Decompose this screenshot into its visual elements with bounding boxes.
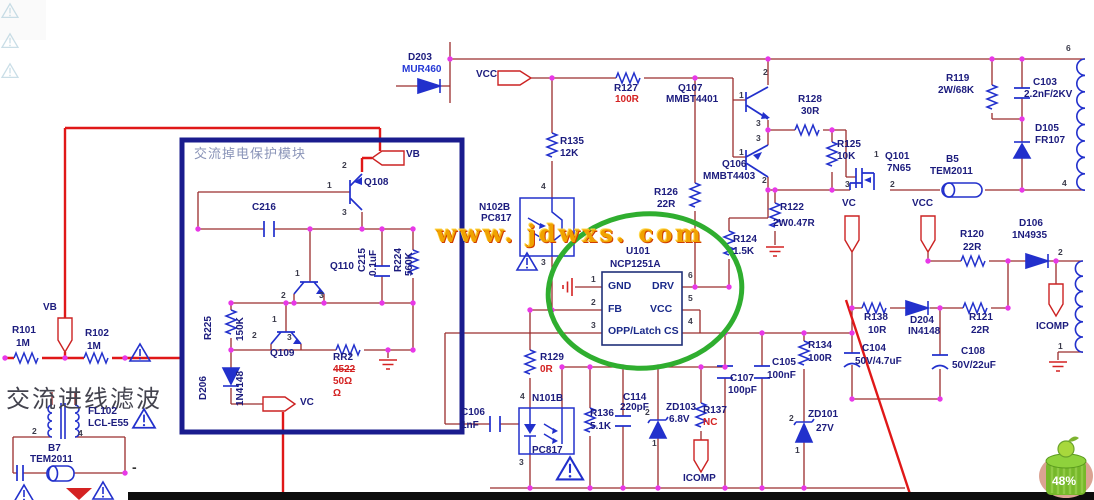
- resistor-r102: [84, 353, 108, 363]
- label-u101: U101: [626, 247, 650, 257]
- n101b-pin4: 4: [520, 392, 525, 401]
- label-d203: D203: [408, 53, 432, 63]
- label-fl102-value: LCL-E55: [88, 419, 129, 429]
- q106-pin3: 3: [756, 134, 761, 143]
- label-r122-value: 2W0.47R: [773, 219, 815, 229]
- label-q106: Q106: [722, 160, 746, 170]
- xfmr-pin6: 6: [1066, 44, 1071, 53]
- zener-zd103: [650, 422, 666, 438]
- resistor-r120: [961, 256, 985, 266]
- label-zd103: ZD103: [666, 403, 696, 413]
- label-c107: C107: [730, 374, 754, 384]
- label-c103: C103: [1033, 78, 1057, 88]
- label-d206: D206: [199, 376, 209, 400]
- flag-vb-left: [58, 318, 72, 352]
- n102b-pin4: 4: [541, 182, 546, 191]
- capacitors: [17, 88, 1030, 481]
- label-r138-value: 10R: [868, 326, 886, 336]
- label-r128-value: 30R: [801, 107, 819, 117]
- label-icomp-bottom: ICOMP: [683, 474, 716, 484]
- label-r225-value: 150K: [236, 317, 246, 341]
- zd103-pin2: 2: [645, 408, 650, 417]
- power-wires: [5, 128, 912, 500]
- label-d206-value: 1N4148: [236, 371, 246, 406]
- diode-d105: [1014, 144, 1030, 158]
- label-r129-value: 0R: [540, 365, 553, 375]
- label-c107-value: 100pF: [728, 386, 757, 396]
- label-n101b-value: PC817: [532, 446, 563, 456]
- label-r136: R136: [590, 409, 614, 419]
- label-q107-value: MMBT4401: [666, 95, 718, 105]
- label-r119-value: 2W/68K: [938, 86, 974, 96]
- bottom-bar: [128, 492, 1094, 500]
- label-icomp-right: ICOMP: [1036, 322, 1069, 332]
- label-c215-value: 0.1uF: [369, 250, 379, 276]
- q101-pin2: 2: [890, 180, 895, 189]
- q106-pin2: 2: [762, 176, 767, 185]
- label-b5-value: TEM2011: [930, 167, 973, 177]
- label-c106-value: 1nF: [461, 421, 479, 431]
- resistor-r127: [616, 73, 640, 83]
- label-q101: Q101: [885, 152, 909, 162]
- label-q110: Q110: [330, 262, 354, 272]
- label-r134: R134: [808, 341, 832, 351]
- q109-pin1: 1: [272, 315, 277, 324]
- label-r125: R125: [837, 140, 861, 150]
- label-zd101: ZD101: [808, 410, 838, 420]
- flag-vcc-mid: [921, 216, 935, 252]
- label-vb-left: VB: [43, 303, 57, 313]
- label-c104-value: 50V/4.7uF: [855, 357, 902, 367]
- label-fl102: FL102: [88, 407, 117, 417]
- q109-pin3: 3: [287, 333, 292, 342]
- label-vc-module: VC: [300, 398, 314, 408]
- label-r121-value: 22R: [971, 326, 989, 336]
- flag-vcc-top: [498, 71, 531, 85]
- zd101-pin2: 2: [789, 414, 794, 423]
- q110-pin1: 1: [295, 269, 300, 278]
- label-r138: R138: [864, 313, 888, 323]
- label-r224: R224: [394, 248, 404, 272]
- signal-wires: [13, 42, 1085, 488]
- label-q101-value: 7N65: [887, 164, 911, 174]
- flag-icomp-bottom: [694, 440, 708, 472]
- label-r120: R120: [960, 230, 984, 240]
- label-r137: R137: [703, 406, 727, 416]
- flag-icomp-right: [1049, 284, 1063, 316]
- label-q108: Q108: [364, 178, 388, 188]
- u101-pin5-num: 5: [688, 294, 693, 303]
- label-rr2-unit: Ω: [333, 389, 341, 399]
- u101-pin-fb: FB: [608, 304, 622, 315]
- q109-pin2: 2: [252, 331, 257, 340]
- label-r120-value: 22R: [963, 243, 981, 253]
- flag-vc-mid: [845, 216, 859, 252]
- battery-widget[interactable]: 48%: [1039, 437, 1093, 498]
- label-r101-value: 1M: [16, 339, 30, 349]
- resistor-r129: [525, 350, 535, 374]
- label-r126: R126: [654, 188, 678, 198]
- zener-zd101: [796, 424, 812, 442]
- label-d106: D106: [1019, 219, 1043, 229]
- label-n102b-value: PC817: [481, 214, 512, 224]
- q108-pin1: 1: [327, 181, 332, 190]
- label-c108-value: 50V/22uF: [952, 361, 996, 371]
- resistor-r128: [795, 125, 819, 135]
- label-rr2-old-value: 4522: [333, 365, 355, 375]
- ac-filter-caption: 交流进线滤波: [6, 379, 162, 414]
- label-c106: C106: [461, 408, 485, 418]
- label-c216: C216: [252, 203, 276, 213]
- u101-pin-vcc: VCC: [650, 304, 672, 315]
- label-d106-value: 1N4935: [1012, 231, 1047, 241]
- label-r128: R128: [798, 95, 822, 105]
- resistor-r101: [14, 353, 38, 363]
- label-zd101-value: 27V: [816, 424, 834, 434]
- q106-pin1: 1: [739, 148, 744, 157]
- label-b7-value: TEM2011: [30, 455, 73, 465]
- battery-percent: 48%: [1052, 474, 1076, 488]
- q107-pin2: 2: [763, 68, 768, 77]
- label-rr2-value: 50Ω: [333, 377, 352, 387]
- q107-pin1: 1: [739, 91, 744, 100]
- bead-b7: [47, 466, 74, 481]
- zd101-pin1: 1: [795, 446, 800, 455]
- red-triangle-bottom: [66, 488, 92, 500]
- label-r127-value: 100R: [615, 95, 639, 105]
- label-r124: R124: [733, 235, 757, 245]
- q108-pin2: 2: [342, 161, 347, 170]
- label-r125-value: 10K: [837, 152, 855, 162]
- label-r134-value: 100R: [808, 354, 832, 364]
- label-n102b: N102B: [479, 203, 510, 213]
- diode-d203: [418, 79, 440, 93]
- protection-module-box: [182, 140, 462, 432]
- net-flags: [58, 71, 1063, 472]
- label-r122: R122: [780, 203, 804, 213]
- resistor-r125: [827, 142, 837, 166]
- aux-pin1: 1: [1058, 342, 1063, 351]
- label-rr2: RR2: [333, 353, 353, 363]
- diode-d106: [1026, 254, 1048, 268]
- xfmr-pin4: 4: [1062, 179, 1067, 188]
- ground-u101-gnd: [563, 278, 572, 296]
- label-vcc-top: VCC: [476, 70, 497, 80]
- minus-sign: -: [132, 459, 137, 475]
- label-b5: B5: [946, 155, 959, 165]
- label-r102: R102: [85, 329, 109, 339]
- q101-pin3: 3: [845, 180, 850, 189]
- label-r135-value: 12K: [560, 149, 578, 159]
- label-r124-value: 1.5K: [733, 247, 754, 257]
- label-r224-value: 560K: [405, 252, 415, 276]
- label-c104: C104: [862, 344, 886, 354]
- label-zd103-value: 6.8V: [669, 415, 690, 425]
- schematic-page: 48% 交流掉电保护模块 www. jdwxs. com 交流进线滤波 D203…: [0, 0, 1094, 500]
- label-d203-value: MUR460: [402, 65, 441, 75]
- diode-d204: [906, 301, 928, 315]
- warning-triangles: [14, 253, 583, 500]
- label-r101: R101: [12, 326, 36, 336]
- label-vcc-mid: VCC: [912, 199, 933, 209]
- transformer-primary-winding: [1077, 59, 1085, 190]
- label-r225: R225: [204, 316, 214, 340]
- u101-pin-cs: CS: [664, 326, 679, 337]
- magnetics: [47, 59, 1085, 481]
- q107-pin3: 3: [756, 119, 761, 128]
- flag-vc-module: [263, 397, 295, 411]
- label-q109: Q109: [270, 349, 294, 359]
- label-q106-value: MMBT4403: [703, 172, 755, 182]
- bead-b5: [942, 183, 982, 197]
- label-r102-value: 1M: [87, 342, 101, 352]
- u101-pin2-num: 2: [591, 298, 596, 307]
- n102b-pin3: 3: [541, 258, 546, 267]
- q101-pin1: 1: [874, 150, 879, 159]
- resistor-r119: [987, 85, 997, 109]
- aux-pin2: 2: [1058, 248, 1063, 257]
- zd103-pin1: 1: [652, 439, 657, 448]
- label-b7: B7: [48, 444, 61, 454]
- label-r121: R121: [969, 313, 993, 323]
- label-vc-mid: VC: [842, 199, 856, 209]
- label-d204: D204: [910, 316, 934, 326]
- label-d105: D105: [1035, 124, 1059, 134]
- u101-pin-gnd: GND: [608, 281, 631, 292]
- label-c108: C108: [961, 347, 985, 357]
- label-r127: R127: [614, 84, 638, 94]
- label-d105-value: FR107: [1035, 136, 1065, 146]
- label-n101b: N101B: [532, 394, 563, 404]
- label-r129: R129: [540, 353, 564, 363]
- fl102-pin2: 2: [32, 427, 37, 436]
- label-c105: C105: [772, 358, 796, 368]
- fl102-pin4: 4: [78, 429, 83, 438]
- label-vb-module: VB: [406, 150, 420, 160]
- ground-aux: [1049, 362, 1067, 371]
- corner-artifact: [0, 0, 46, 40]
- transformer-aux-winding: [1075, 261, 1083, 352]
- label-c103-value: 2.2nF/2KV: [1024, 90, 1072, 100]
- label-r119: R119: [946, 74, 969, 84]
- label-c105-value: 100nF: [767, 371, 796, 381]
- u101-pin4-num: 4: [688, 317, 693, 326]
- watermark-text: www. jdwxs. com: [436, 219, 704, 248]
- label-r126-value: 22R: [657, 200, 675, 210]
- flag-vb-module: [372, 151, 404, 165]
- label-r137-value: NC: [703, 418, 717, 428]
- q110-pin3: 3: [319, 291, 324, 300]
- module-title: 交流掉电保护模块: [194, 146, 326, 162]
- u101-pin1-num: 1: [591, 275, 596, 284]
- label-r136-value: 5.1K: [590, 422, 611, 432]
- label-d204-value: IN4148: [908, 327, 940, 337]
- schematic-canvas: 48%: [0, 0, 1094, 500]
- q110-pin2: 2: [281, 291, 286, 300]
- label-r135: R135: [560, 137, 584, 147]
- ground-module: [379, 360, 397, 369]
- u101-pin3-num: 3: [591, 321, 596, 330]
- label-u101-part: NCP1251A: [610, 260, 661, 270]
- label-c215: C215: [358, 248, 368, 272]
- ground-r122: [766, 247, 784, 256]
- n101b-pin3: 3: [519, 458, 524, 467]
- resistor-r135: [547, 133, 557, 157]
- q108-pin3: 3: [342, 208, 347, 217]
- apple-icon: [1058, 441, 1074, 457]
- label-q107: Q107: [678, 84, 702, 94]
- u101-pin6-num: 6: [688, 271, 693, 280]
- u101-pin-drv: DRV: [652, 281, 674, 292]
- resistor-r126: [690, 183, 700, 207]
- u101-pin-opp: OPP/Latch: [608, 326, 661, 337]
